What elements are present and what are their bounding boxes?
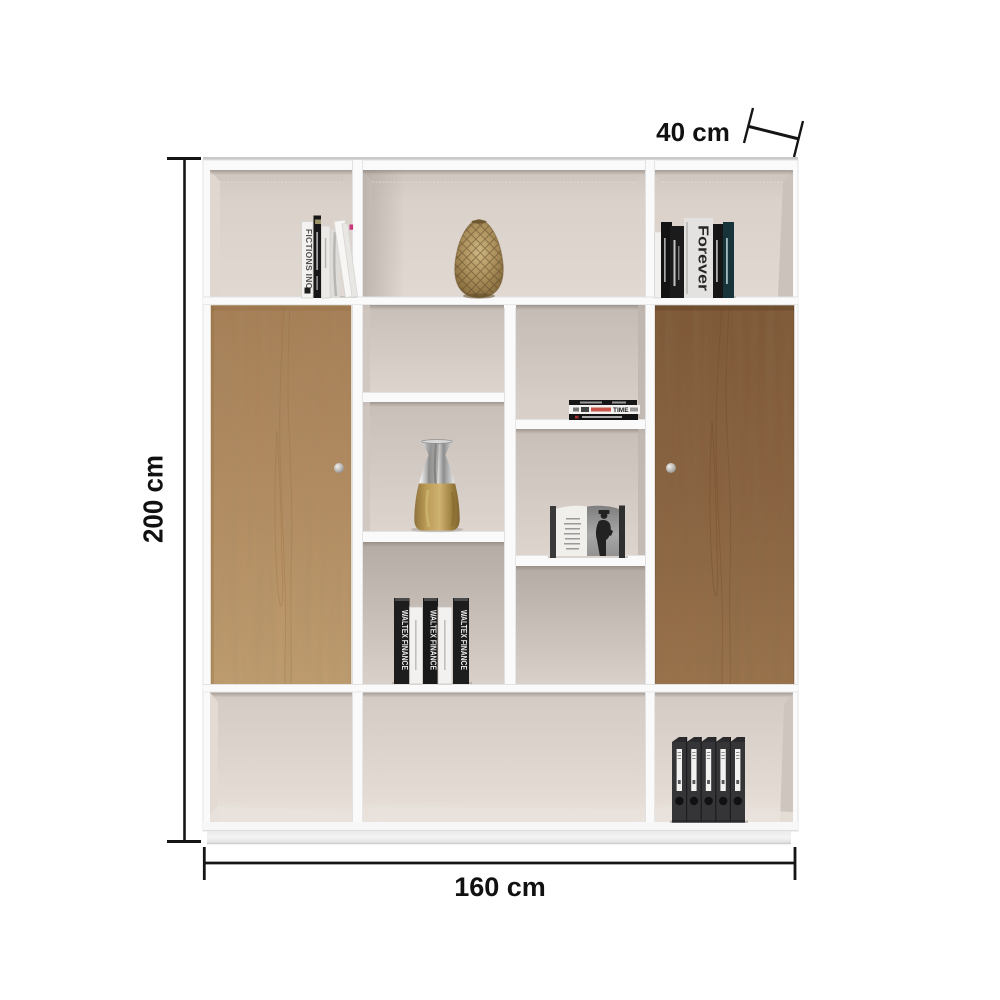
svg-text:200 cm: 200 cm	[138, 455, 169, 543]
svg-text:WALTEX FINANCE: WALTEX FINANCE	[400, 610, 409, 671]
svg-text:TIME: TIME	[613, 407, 629, 414]
svg-text:Forever: Forever	[695, 225, 712, 291]
svg-text:WALTEX FINANCE: WALTEX FINANCE	[428, 610, 437, 671]
svg-text:WALTEX FINANCE: WALTEX FINANCE	[459, 610, 468, 671]
svg-text:40 cm: 40 cm	[656, 117, 730, 147]
svg-text:FICTIONS INC: FICTIONS INC	[304, 229, 314, 289]
svg-text:160 cm: 160 cm	[454, 872, 546, 902]
